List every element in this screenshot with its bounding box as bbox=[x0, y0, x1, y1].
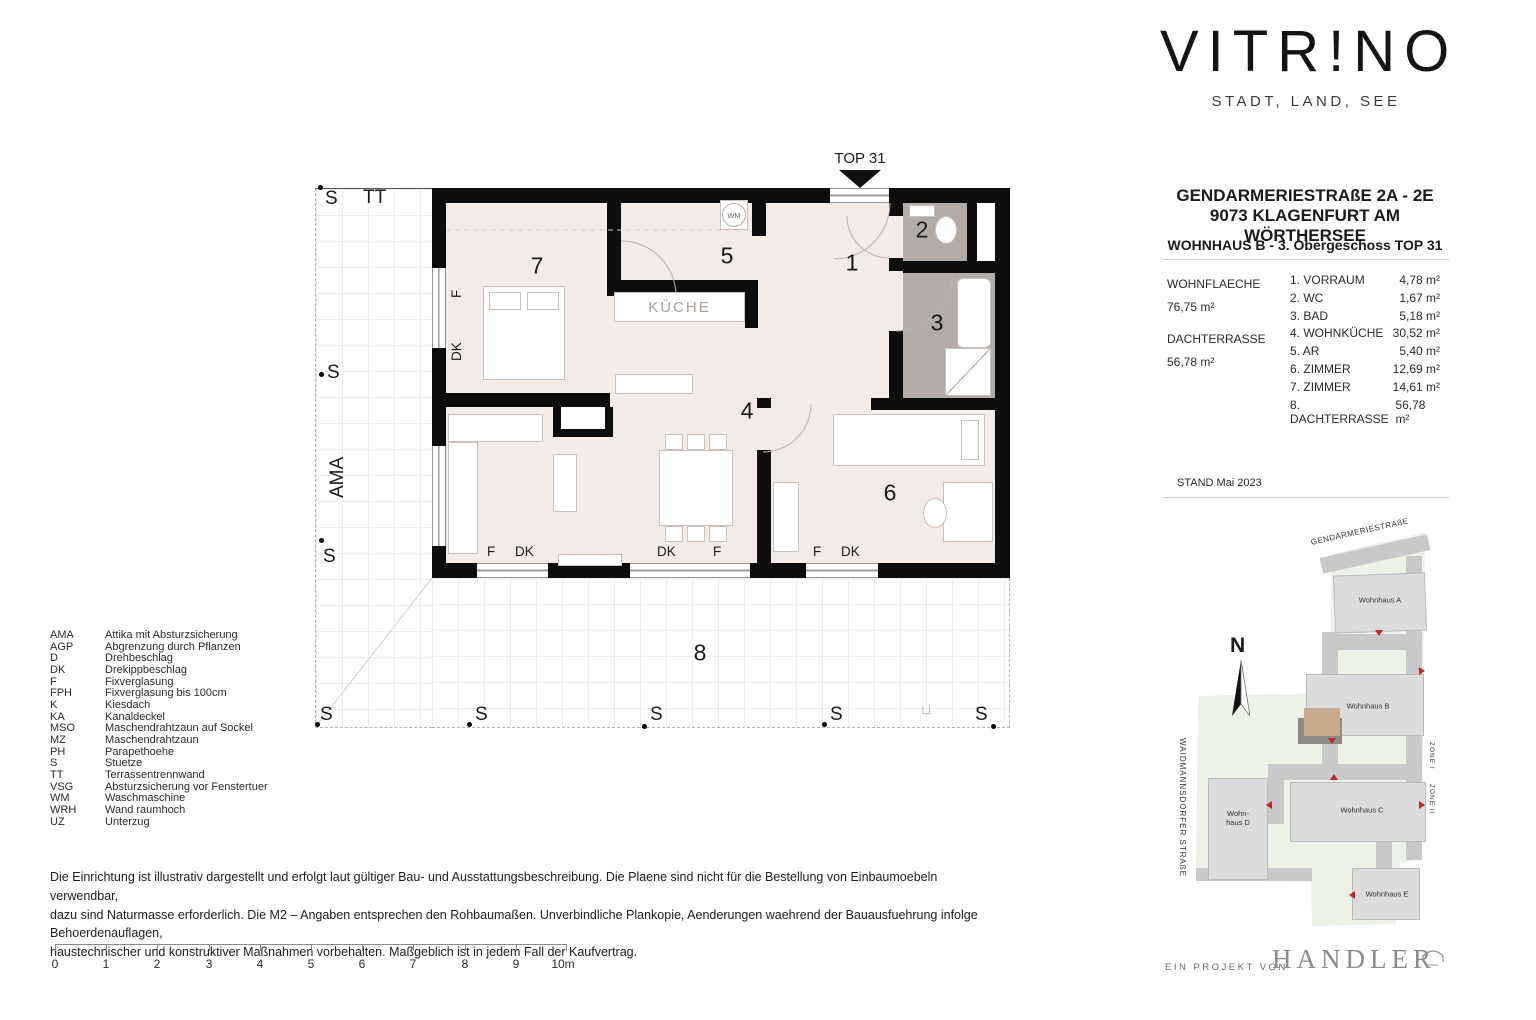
legend-row: DDrehbeschlag bbox=[50, 652, 310, 664]
terrace-door-sill bbox=[558, 554, 622, 566]
scale-label: 2 bbox=[154, 957, 161, 971]
legend-text: Maschendrahtzaun auf Sockel bbox=[105, 722, 253, 734]
room-number-6: 6 bbox=[884, 480, 897, 507]
brand-wordmark-i-mark: ! bbox=[1328, 19, 1353, 84]
divider bbox=[1163, 259, 1449, 260]
room-name: 5. AR bbox=[1290, 344, 1319, 362]
legend-abbr: TT bbox=[50, 769, 105, 781]
legend-text: Kiesdach bbox=[105, 699, 150, 711]
chair-icon bbox=[687, 526, 705, 542]
area-summary: WOHNFLAECHE 76,75 m² DACHTERRASSE 56,78 … bbox=[1167, 277, 1287, 369]
unit-title: WOHNHAUS B - 3. Obergeschoss TOP 31 bbox=[1158, 237, 1452, 253]
legend-row: SStuetze bbox=[50, 758, 310, 770]
scale-label: 6 bbox=[359, 957, 366, 971]
room-area: 56,78 m² bbox=[1395, 398, 1440, 416]
legend-text: Drehbeschlag bbox=[105, 652, 173, 664]
legend-row: AMAAttika mit Absturzsicherung bbox=[50, 629, 310, 641]
room-area: 1,67 m² bbox=[1399, 291, 1440, 309]
entrance-marker bbox=[1375, 630, 1383, 636]
window-label-f: F bbox=[487, 544, 495, 559]
window-label-dk: DK bbox=[841, 544, 860, 559]
drain-symbol: ⊐ bbox=[919, 704, 935, 715]
legend-text: Parapethoehe bbox=[105, 746, 174, 758]
legend-abbr: AGP bbox=[50, 641, 105, 653]
desk-icon bbox=[943, 482, 993, 542]
legend-row: FPHFixverglasung bis 100cm bbox=[50, 687, 310, 699]
kitchen-counter: KÜCHE bbox=[614, 292, 745, 322]
floor-plan: KÜCHE WM 1 2 3 4 5 6 7 8 TOP 31 F DK DK … bbox=[315, 146, 1015, 746]
table-row: 7. ZIMMER14,61 m² bbox=[1290, 380, 1440, 398]
scale-tick bbox=[413, 944, 414, 951]
scale-label: 1 bbox=[103, 957, 110, 971]
column-dot bbox=[642, 724, 647, 729]
room-no: 4. bbox=[1290, 326, 1300, 340]
project-prefix: EIN PROJEKT VON bbox=[1165, 962, 1288, 973]
legend-abbr: F bbox=[50, 676, 105, 688]
room-no: 3. bbox=[1290, 309, 1300, 323]
scale-tick bbox=[260, 944, 261, 951]
column-dot bbox=[315, 722, 320, 727]
legend-abbr: S bbox=[50, 757, 105, 769]
disclaimer-line: dazu sind Naturmasse erforderlich. Die M… bbox=[50, 906, 1000, 944]
coffee-table-icon bbox=[553, 454, 577, 512]
legend-text: Kanaldeckel bbox=[105, 711, 165, 723]
scale-tick bbox=[55, 944, 56, 951]
scale-bar: 0 1 2 3 4 5 6 7 8 9 10m bbox=[55, 944, 567, 976]
column-dot bbox=[318, 185, 323, 190]
scale-tick bbox=[209, 944, 210, 951]
stand-date: STAND Mai 2023 bbox=[1177, 477, 1262, 489]
room-title: DACHTERRASSE bbox=[1290, 412, 1389, 426]
table-row: 6. ZIMMER12,69 m² bbox=[1290, 362, 1440, 380]
legend-text: Terrassentrennwand bbox=[105, 769, 205, 781]
chair-icon bbox=[665, 434, 683, 450]
column-label: S bbox=[320, 704, 333, 726]
legend-row: MZMaschendrahtzaun bbox=[50, 734, 310, 746]
entrance-marker bbox=[1419, 667, 1425, 675]
scale-label: 5 bbox=[308, 957, 315, 971]
legend-text: Fixverglasung bis 100cm bbox=[105, 687, 227, 699]
building-label: Wohnhaus C bbox=[1332, 806, 1392, 815]
brand-wordmark: VITR!NO bbox=[1160, 18, 1452, 85]
building-label: Wohnhaus A bbox=[1350, 596, 1410, 605]
kitchen-island bbox=[615, 374, 693, 394]
entrance-marker bbox=[1349, 891, 1355, 899]
legend-text: Fixverglasung bbox=[105, 676, 173, 688]
column-dot bbox=[319, 372, 324, 377]
street-label-left: WAIDMANNSDORFER STRAßE bbox=[1178, 738, 1187, 877]
legend-abbr: WM bbox=[50, 792, 105, 804]
legend-text: Drekippbeschlag bbox=[105, 664, 187, 676]
room-title: BAD bbox=[1303, 309, 1328, 323]
scale-tick bbox=[516, 944, 517, 951]
sofa-icon bbox=[448, 442, 478, 554]
legend-abbr: DK bbox=[50, 664, 105, 676]
pillow-icon bbox=[527, 292, 559, 310]
building-wohnhaus-d bbox=[1208, 778, 1268, 880]
legend-row: WRHWand raumhoch bbox=[50, 804, 310, 816]
column-label: S bbox=[327, 362, 340, 384]
entrance-marker bbox=[1330, 774, 1338, 780]
room-number-2: 2 bbox=[916, 217, 929, 244]
chair-icon bbox=[709, 434, 727, 450]
scale-label: 9 bbox=[513, 957, 520, 971]
room-area: 12,69 m² bbox=[1393, 362, 1440, 380]
room-no: 8. bbox=[1290, 398, 1300, 412]
room-name: 2. WC bbox=[1290, 291, 1323, 309]
window-label-f: F bbox=[449, 290, 464, 298]
legend-text: Waschmaschine bbox=[105, 792, 185, 804]
legend-abbr: KA bbox=[50, 711, 105, 723]
legend-row: KKiesdach bbox=[50, 699, 310, 711]
washing-machine-icon: WM bbox=[720, 200, 748, 230]
column-label: S bbox=[325, 188, 338, 210]
room-number-7: 7 bbox=[531, 253, 544, 280]
legend-abbr: D bbox=[50, 652, 105, 664]
column-label: S bbox=[830, 704, 843, 726]
scale-tick bbox=[566, 944, 567, 951]
legend-abbr: FPH bbox=[50, 687, 105, 699]
legend-abbr: UZ bbox=[50, 816, 105, 828]
brand-tagline: STADT, LAND, SEE bbox=[1160, 93, 1452, 110]
scale-label: 0 bbox=[52, 957, 59, 971]
room-number-5: 5 bbox=[721, 243, 734, 270]
building-label: Wohn-haus D bbox=[1221, 809, 1255, 827]
living-area-label: WOHNFLAECHE bbox=[1167, 277, 1287, 291]
dining-table-icon bbox=[659, 450, 733, 526]
window-label-dk: DK bbox=[657, 544, 676, 559]
living-area-value: 76,75 m² bbox=[1167, 300, 1287, 314]
entrance-arrow-icon bbox=[839, 170, 881, 188]
table-row: 1. VORRAUM4,78 m² bbox=[1290, 273, 1440, 291]
table-row: 5. AR5,40 m² bbox=[1290, 344, 1440, 362]
window-label-dk: DK bbox=[515, 544, 534, 559]
legend-row: TTTerrassentrennwand bbox=[50, 769, 310, 781]
top-marker-label: TOP 31 bbox=[834, 150, 885, 167]
kueche-label: KÜCHE bbox=[648, 299, 711, 316]
zone-2-label: ZONE II bbox=[1428, 784, 1435, 814]
table-row: 3. BAD5,18 m² bbox=[1290, 309, 1440, 327]
room-number-8: 8 bbox=[694, 640, 707, 667]
room-number-1: 1 bbox=[846, 250, 859, 277]
address-line1: GENDARMERIESTRAßE 2A - 2E bbox=[1158, 186, 1452, 206]
column-label: S bbox=[323, 546, 336, 568]
column-label: S bbox=[650, 704, 663, 726]
chair-icon bbox=[687, 434, 705, 450]
column-dot bbox=[467, 722, 472, 727]
north-arrow-icon bbox=[1232, 660, 1250, 718]
chair-icon bbox=[709, 526, 727, 542]
brand-wordmark-part2: NO bbox=[1353, 19, 1458, 84]
pillow-icon bbox=[489, 292, 521, 310]
scale-label: 7 bbox=[410, 957, 417, 971]
legend-text: Wand raumhoch bbox=[105, 804, 185, 816]
pillow-icon bbox=[961, 420, 979, 460]
brand-wordmark-part1: VITR bbox=[1160, 19, 1328, 84]
room-area: 5,18 m² bbox=[1399, 309, 1440, 327]
highlight-unit-top31 bbox=[1304, 708, 1340, 736]
column-dot bbox=[991, 724, 996, 729]
terrace-area-value: 56,78 m² bbox=[1167, 355, 1287, 369]
legend-row: MSOMaschendrahtzaun auf Sockel bbox=[50, 723, 310, 735]
legend-text: Abgrenzung durch Pflanzen bbox=[105, 641, 241, 653]
room-number-4: 4 bbox=[741, 398, 754, 425]
legend-text: Stuetze bbox=[105, 757, 142, 769]
legend-text: Unterzug bbox=[105, 816, 150, 828]
room-name: 3. BAD bbox=[1290, 309, 1328, 327]
room-title: WC bbox=[1303, 291, 1323, 305]
legend-abbr: VSG bbox=[50, 781, 105, 793]
room-table: 1. VORRAUM4,78 m² 2. WC1,67 m² 3. BAD5,1… bbox=[1290, 273, 1440, 415]
room-no: 1. bbox=[1290, 273, 1300, 287]
road bbox=[1330, 634, 1410, 650]
legend-abbr: MSO bbox=[50, 722, 105, 734]
room-no: 7. bbox=[1290, 380, 1300, 394]
room-title: WOHNKÜCHE bbox=[1303, 326, 1383, 340]
table-row: 2. WC1,67 m² bbox=[1290, 291, 1440, 309]
room-name: 8. DACHTERRASSE bbox=[1290, 398, 1395, 416]
attika-label: AMA bbox=[327, 457, 349, 498]
legend-text: Attika mit Absturzsicherung bbox=[105, 629, 238, 641]
floorplan-sheet: { "colors": {"wall":"#0d0d0d","floor":"#… bbox=[0, 0, 1536, 1020]
sofa-icon bbox=[448, 414, 543, 442]
legend-row: KAKanaldeckel bbox=[50, 711, 310, 723]
room-no: 5. bbox=[1290, 344, 1300, 358]
room-no: 2. bbox=[1290, 291, 1300, 305]
column-dot bbox=[319, 538, 324, 543]
scale-label: 8 bbox=[462, 957, 469, 971]
scale-tick bbox=[157, 944, 158, 951]
scale-tick bbox=[106, 944, 107, 951]
divider bbox=[1163, 497, 1449, 498]
zone-1-label: ZONE I bbox=[1428, 742, 1435, 770]
developer-brand: HANDLER bbox=[1272, 944, 1436, 975]
room-name: 7. ZIMMER bbox=[1290, 380, 1351, 398]
legend-row: FFixverglasung bbox=[50, 676, 310, 688]
room-name: 1. VORRAUM bbox=[1290, 273, 1365, 291]
wc-sink-icon bbox=[909, 205, 935, 217]
room-number-3: 3 bbox=[931, 310, 944, 337]
brand-logo: VITR!NO STADT, LAND, SEE bbox=[1160, 18, 1452, 110]
scale-label: 3 bbox=[206, 957, 213, 971]
table-row: 4. WOHNKÜCHE30,52 m² bbox=[1290, 326, 1440, 344]
scale-label: 4 bbox=[257, 957, 264, 971]
scale-tick bbox=[465, 944, 466, 951]
room-title: ZIMMER bbox=[1303, 380, 1350, 394]
shower-icon bbox=[945, 348, 991, 396]
legend-text: Absturzsicherung vor Fenstertuer bbox=[105, 781, 268, 793]
room-area: 14,61 m² bbox=[1393, 380, 1440, 398]
entrance-marker bbox=[1419, 801, 1425, 809]
room-area: 4,78 m² bbox=[1399, 273, 1440, 291]
building-label: Wohnhaus B bbox=[1338, 702, 1398, 711]
legend-row: WMWaschmaschine bbox=[50, 793, 310, 805]
window-label-f: F bbox=[713, 544, 721, 559]
entrance-marker bbox=[1266, 801, 1272, 809]
room-name: 4. WOHNKÜCHE bbox=[1290, 326, 1383, 344]
window-label-f: F bbox=[813, 544, 821, 559]
chair-icon bbox=[923, 498, 947, 528]
wardrobe-icon bbox=[773, 482, 799, 552]
legend-abbr: AMA bbox=[50, 629, 105, 641]
disclaimer-line: Die Einrichtung ist illustrativ dargeste… bbox=[50, 868, 1000, 906]
legend-text: Maschendrahtzaun bbox=[105, 734, 199, 746]
column-label: S bbox=[975, 704, 988, 726]
terrace-area-label: DACHTERRASSE bbox=[1167, 332, 1287, 346]
table-row: 8. DACHTERRASSE56,78 m² bbox=[1290, 398, 1440, 416]
room-no: 6. bbox=[1290, 362, 1300, 376]
legend-abbr: MZ bbox=[50, 734, 105, 746]
building-label: Wohnhaus E bbox=[1357, 890, 1417, 899]
column-label: S bbox=[475, 704, 488, 726]
north-label: N bbox=[1230, 634, 1245, 658]
scale-label: 10m bbox=[551, 957, 574, 971]
bathtub-icon bbox=[957, 278, 991, 348]
legend-abbr: WRH bbox=[50, 804, 105, 816]
handler-roof-icon bbox=[1420, 944, 1446, 970]
scale-tick bbox=[311, 944, 312, 951]
scale-tick bbox=[362, 944, 363, 951]
road bbox=[1268, 764, 1420, 780]
legend-row: AGPAbgrenzung durch Pflanzen bbox=[50, 641, 310, 653]
room-area: 30,52 m² bbox=[1393, 326, 1440, 344]
site-map: Wohnhaus A Wohnhaus B Wohnhaus C Wohn-ha… bbox=[1172, 512, 1464, 964]
legend-abbr: K bbox=[50, 699, 105, 711]
legend-row: DKDrekippbeschlag bbox=[50, 664, 310, 676]
entrance-marker bbox=[1328, 738, 1336, 744]
legend-row: PHParapethoehe bbox=[50, 746, 310, 758]
toilet-icon bbox=[935, 216, 957, 244]
room-title: AR bbox=[1303, 344, 1320, 358]
legend: AMAAttika mit Absturzsicherung AGPAbgren… bbox=[50, 629, 310, 828]
room-title: VORRAUM bbox=[1303, 273, 1364, 287]
room-name: 6. ZIMMER bbox=[1290, 362, 1351, 380]
room-title: ZIMMER bbox=[1303, 362, 1350, 376]
legend-row: UZUnterzug bbox=[50, 816, 310, 828]
chair-icon bbox=[665, 526, 683, 542]
room-area: 5,40 m² bbox=[1399, 344, 1440, 362]
legend-abbr: PH bbox=[50, 746, 105, 758]
terrace-wall-label: TT bbox=[363, 187, 386, 209]
legend-row: VSGAbsturzsicherung vor Fenstertuer bbox=[50, 781, 310, 793]
column-dot bbox=[822, 722, 827, 727]
wm-label: WM bbox=[722, 203, 746, 227]
window-label-dk: DK bbox=[449, 342, 464, 361]
